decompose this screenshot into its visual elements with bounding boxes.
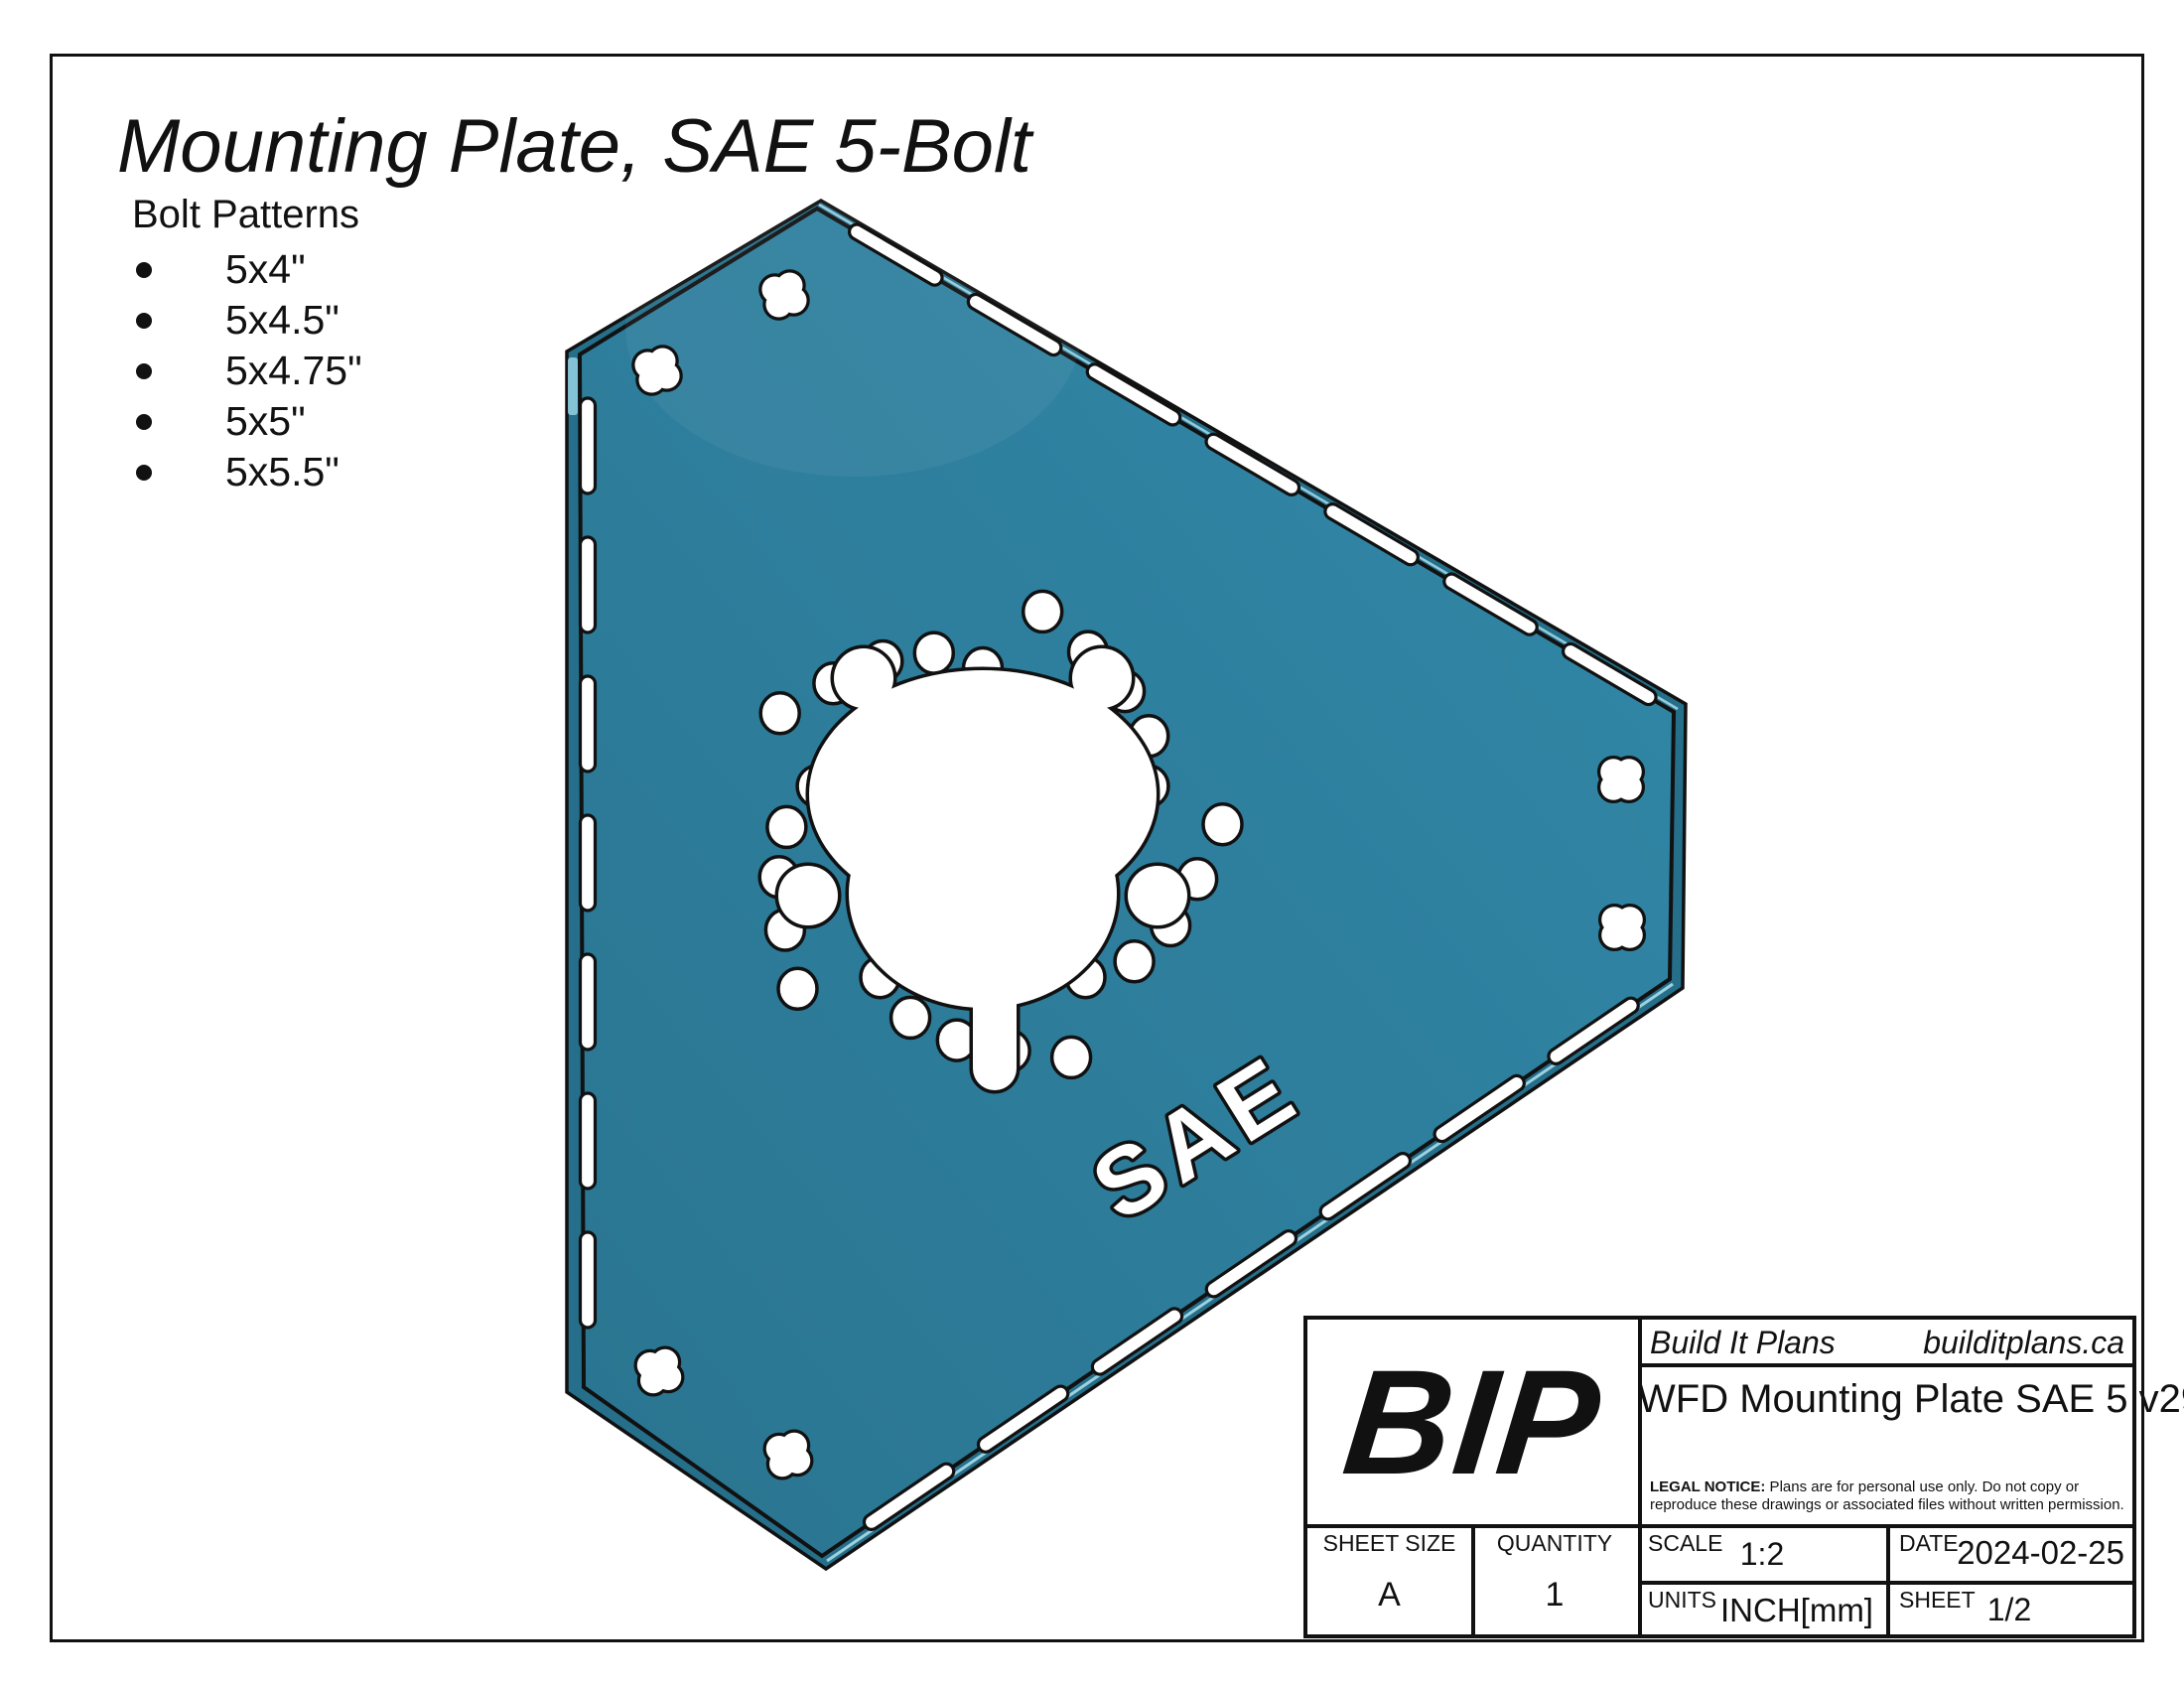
clover-hole [766,1433,810,1477]
clover-hole-center [1611,770,1631,789]
date-value: 2024-02-25 [1886,1534,2124,1572]
tb-line [1638,1363,2132,1367]
tab-slot [581,537,596,633]
brand-name: Build It Plans [1650,1325,1836,1361]
legal-notice: LEGAL NOTICE: Plans are for personal use… [1650,1478,2146,1514]
brand-website: builditplans.ca [1923,1325,2124,1361]
bolt-hole [914,633,953,673]
tb-line [1638,1581,2132,1585]
sheet-size-value: A [1307,1576,1471,1615]
bolt-hole [891,997,930,1038]
tab-slot [581,1093,596,1189]
clover-hole [761,272,806,317]
units-label: UNITS [1648,1587,1716,1614]
bolt-hole [1052,1037,1091,1077]
bolt-hole [1203,804,1242,845]
edge-highlight-left [568,357,578,415]
quantity-label: QUANTITY [1471,1530,1638,1557]
bolt-hole [760,693,799,734]
units-value: INCH[mm] [1707,1592,1886,1629]
clover-hole [1601,907,1643,948]
bolt-hole [767,806,806,847]
sheet: Mounting Plate, SAE 5-Bolt Bolt Patterns… [0,0,2184,1688]
tab-slot [581,954,596,1050]
clover-hole-center [778,1445,798,1465]
quantity-value: 1 [1471,1576,1638,1615]
tb-line [1307,1524,2132,1528]
part-title: WFD Mounting Plate SAE 5 v29 [1638,1377,2132,1422]
bolt-hole [1115,941,1154,982]
scale-value: 1:2 [1638,1536,1886,1573]
bolt-hole [778,968,817,1009]
bolt-hole [1024,591,1062,632]
clover-hole-center [647,360,667,380]
tab-slot [581,398,596,493]
clover-hole-center [649,1361,669,1381]
sheet-value: 1/2 [1886,1592,2132,1628]
clover-hole [1600,759,1642,800]
company-logo: BIP [1297,1320,1649,1524]
clover-hole-center [774,285,794,305]
legal-notice-label: LEGAL NOTICE: [1650,1478,1765,1495]
tab-slot [581,1232,596,1328]
brand-row: Build It Plans builditplans.ca [1650,1324,2124,1361]
tab-slot [581,815,596,911]
tab-slot [581,676,596,772]
title-block: BIP Build It Plans builditplans.ca WFD M… [1303,1316,2136,1638]
clover-hole [637,1349,681,1393]
sheet-size-label: SHEET SIZE [1307,1530,1471,1557]
clover-hole-center [1612,917,1632,937]
clover-hole [634,348,679,392]
